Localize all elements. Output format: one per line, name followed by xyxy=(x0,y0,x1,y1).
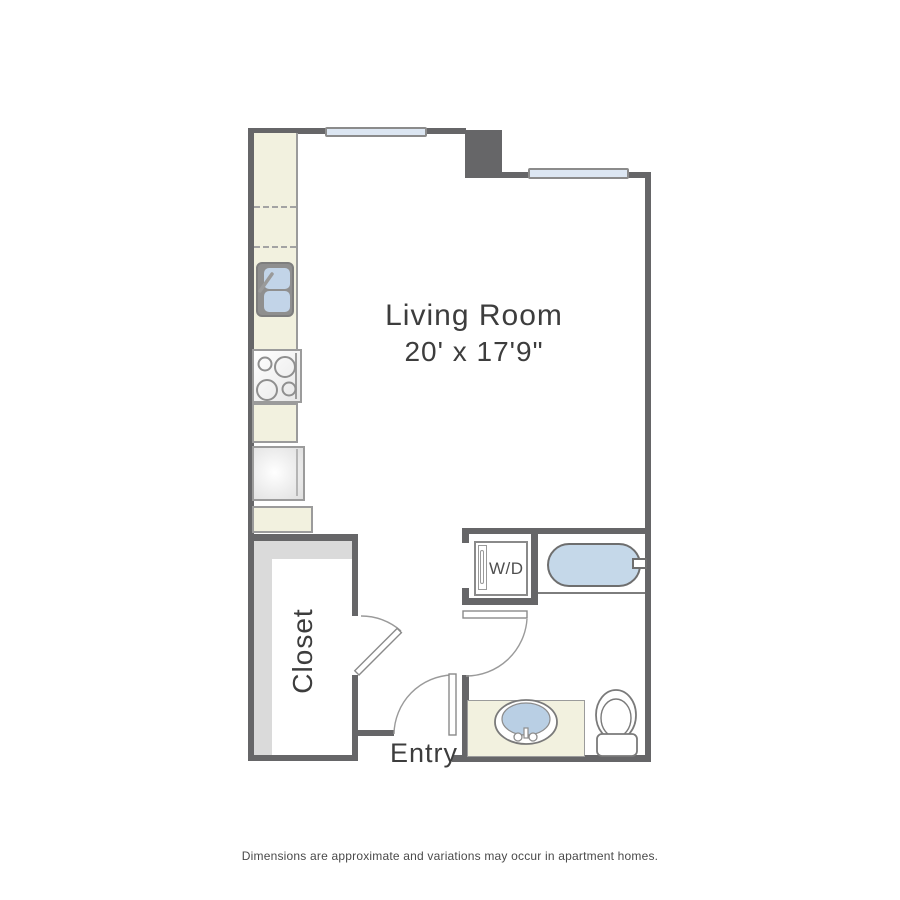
stove xyxy=(252,349,302,403)
entry-wall xyxy=(352,730,394,736)
wd-closet-bottom-wall xyxy=(462,598,538,605)
window-right xyxy=(528,168,629,179)
living-room-dimensions: 20' x 17'9" xyxy=(349,336,599,368)
sink-basin-upper xyxy=(264,268,290,289)
closet-label: Closet xyxy=(287,571,319,731)
washer-dryer-door-inner xyxy=(480,550,484,584)
closet-bottom-wall xyxy=(248,754,358,761)
wd-closet-stub-top xyxy=(462,528,469,543)
door-leaf xyxy=(449,674,456,735)
washer-dryer-door-panel xyxy=(478,545,487,590)
disclaimer-text: Dimensions are approximate and variation… xyxy=(0,849,900,863)
stove-handle xyxy=(295,353,297,399)
cabinet-divider-line xyxy=(254,206,296,208)
vanity-counter xyxy=(467,700,585,757)
sink-basin-lower xyxy=(264,291,290,312)
tub-alcove-line xyxy=(538,592,645,594)
toilet xyxy=(596,690,637,756)
door-swing-arc xyxy=(466,619,527,676)
kitchen-counter-bottom xyxy=(252,506,313,533)
wd-tub-divider-wall xyxy=(531,534,538,605)
kitchen-sink xyxy=(256,262,294,317)
door-leaf xyxy=(463,611,527,618)
washer-dryer: W/D xyxy=(474,541,528,596)
toilet-tank xyxy=(597,734,637,756)
closet-door xyxy=(355,616,402,675)
window-top xyxy=(325,127,427,137)
structural-column xyxy=(465,130,502,178)
toilet-bowl xyxy=(596,690,636,740)
door-swing-arc xyxy=(361,616,401,631)
door-leaf xyxy=(355,628,402,675)
entry-door xyxy=(394,674,456,735)
refrigerator xyxy=(252,446,305,501)
closet-right-wall-lower xyxy=(352,675,358,760)
cabinet-divider-line xyxy=(254,246,296,248)
refrigerator-door-line xyxy=(296,449,298,496)
bathtub-faucet xyxy=(632,558,647,569)
closet-top-wall xyxy=(248,534,358,541)
kitchen-counter-mid xyxy=(252,403,298,443)
closet-right-wall-upper xyxy=(352,534,358,616)
washer-dryer-label: W/D xyxy=(489,559,524,579)
toilet-seat xyxy=(601,699,631,737)
floor-plan: W/D xyxy=(0,0,900,900)
entry-label: Entry xyxy=(384,738,464,769)
living-room-label: Living Room xyxy=(349,299,599,333)
wall-right xyxy=(645,172,651,762)
bathroom-door xyxy=(463,611,527,676)
door-swing-arc xyxy=(394,675,452,734)
bathtub xyxy=(547,543,641,587)
bathroom-top-wall xyxy=(462,528,651,534)
